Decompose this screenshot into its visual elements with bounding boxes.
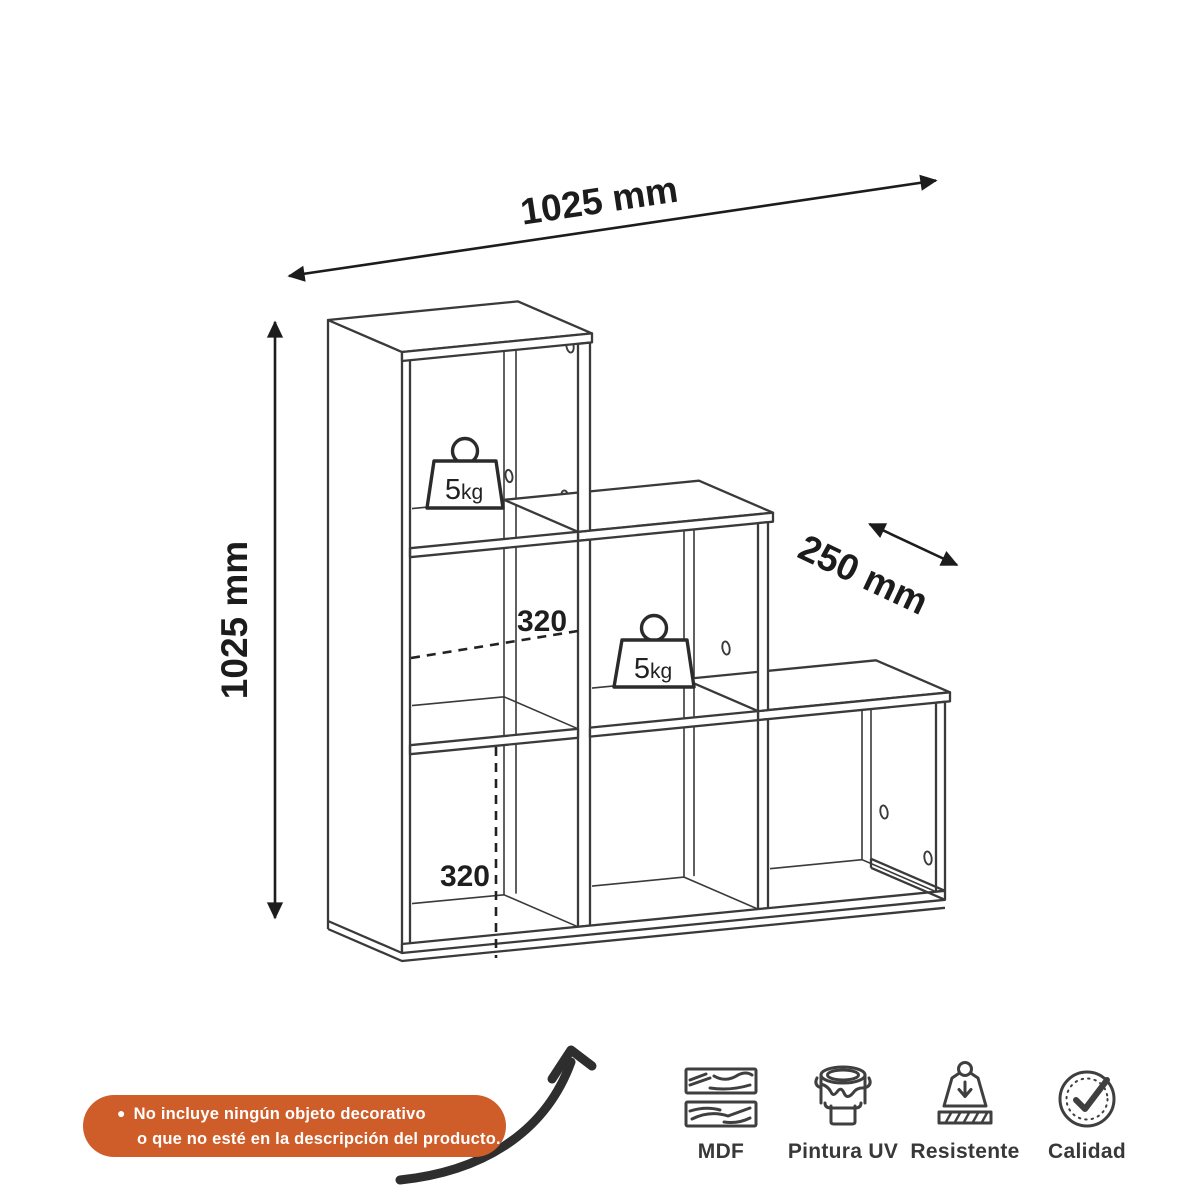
paint-bucket-icon	[804, 1062, 882, 1132]
shelf-structure	[328, 301, 950, 953]
depth-arrow	[870, 524, 958, 565]
depth-dimension-label: 250 mm	[792, 527, 934, 623]
wood-planks-icon	[680, 1066, 762, 1132]
cell-height-dimension: 320	[440, 860, 490, 893]
feature-list: MDF Pintura UV	[660, 1058, 1180, 1188]
feature-mdf: MDF	[660, 1058, 782, 1188]
bullet-icon: ●	[117, 1101, 126, 1126]
check-badge-icon	[1051, 1064, 1123, 1132]
shelf-back-edges	[412, 311, 936, 927]
note-line-1: ●No incluye ningún objeto decorativo	[117, 1101, 506, 1127]
weight-unit: kg	[650, 660, 672, 683]
weight-unit: kg	[461, 481, 483, 504]
screw-hole-icons	[505, 339, 933, 865]
note-badge: ●No incluye ningún objeto decorativo o q…	[83, 1095, 506, 1157]
product-diagram-page: 5kg 5kg 320 320 1025 mm 1025 mm 250 mm ●…	[0, 0, 1200, 1200]
feature-calidad: Calidad	[1026, 1058, 1148, 1188]
weight-value: 5	[445, 474, 461, 506]
feature-label: Pintura UV	[788, 1140, 898, 1164]
shelf-diagram: 5kg 5kg 320 320 1025 mm 1025 mm 250 mm	[0, 0, 1200, 1200]
weight-value: 5	[634, 653, 650, 685]
cell-dimension-lines	[411, 631, 578, 958]
left-side-panel	[328, 320, 402, 953]
weight-icon	[926, 1060, 1004, 1132]
feature-label: Resistente	[910, 1140, 1019, 1164]
load-weight-icon: 5kg	[427, 439, 503, 509]
height-dimension-label: 1025 mm	[214, 541, 255, 699]
feature-label: Calidad	[1048, 1140, 1126, 1164]
feature-label: MDF	[698, 1140, 744, 1164]
note-line-2: o que no esté en la descripción del prod…	[117, 1127, 506, 1152]
feature-resistente: Resistente	[904, 1058, 1026, 1188]
cell-width-dimension: 320	[517, 605, 567, 638]
note-text-1: No incluye ningún objeto decorativo	[134, 1105, 426, 1123]
feature-pintura-uv: Pintura UV	[782, 1058, 904, 1188]
load-weight-icon: 5kg	[614, 616, 694, 688]
